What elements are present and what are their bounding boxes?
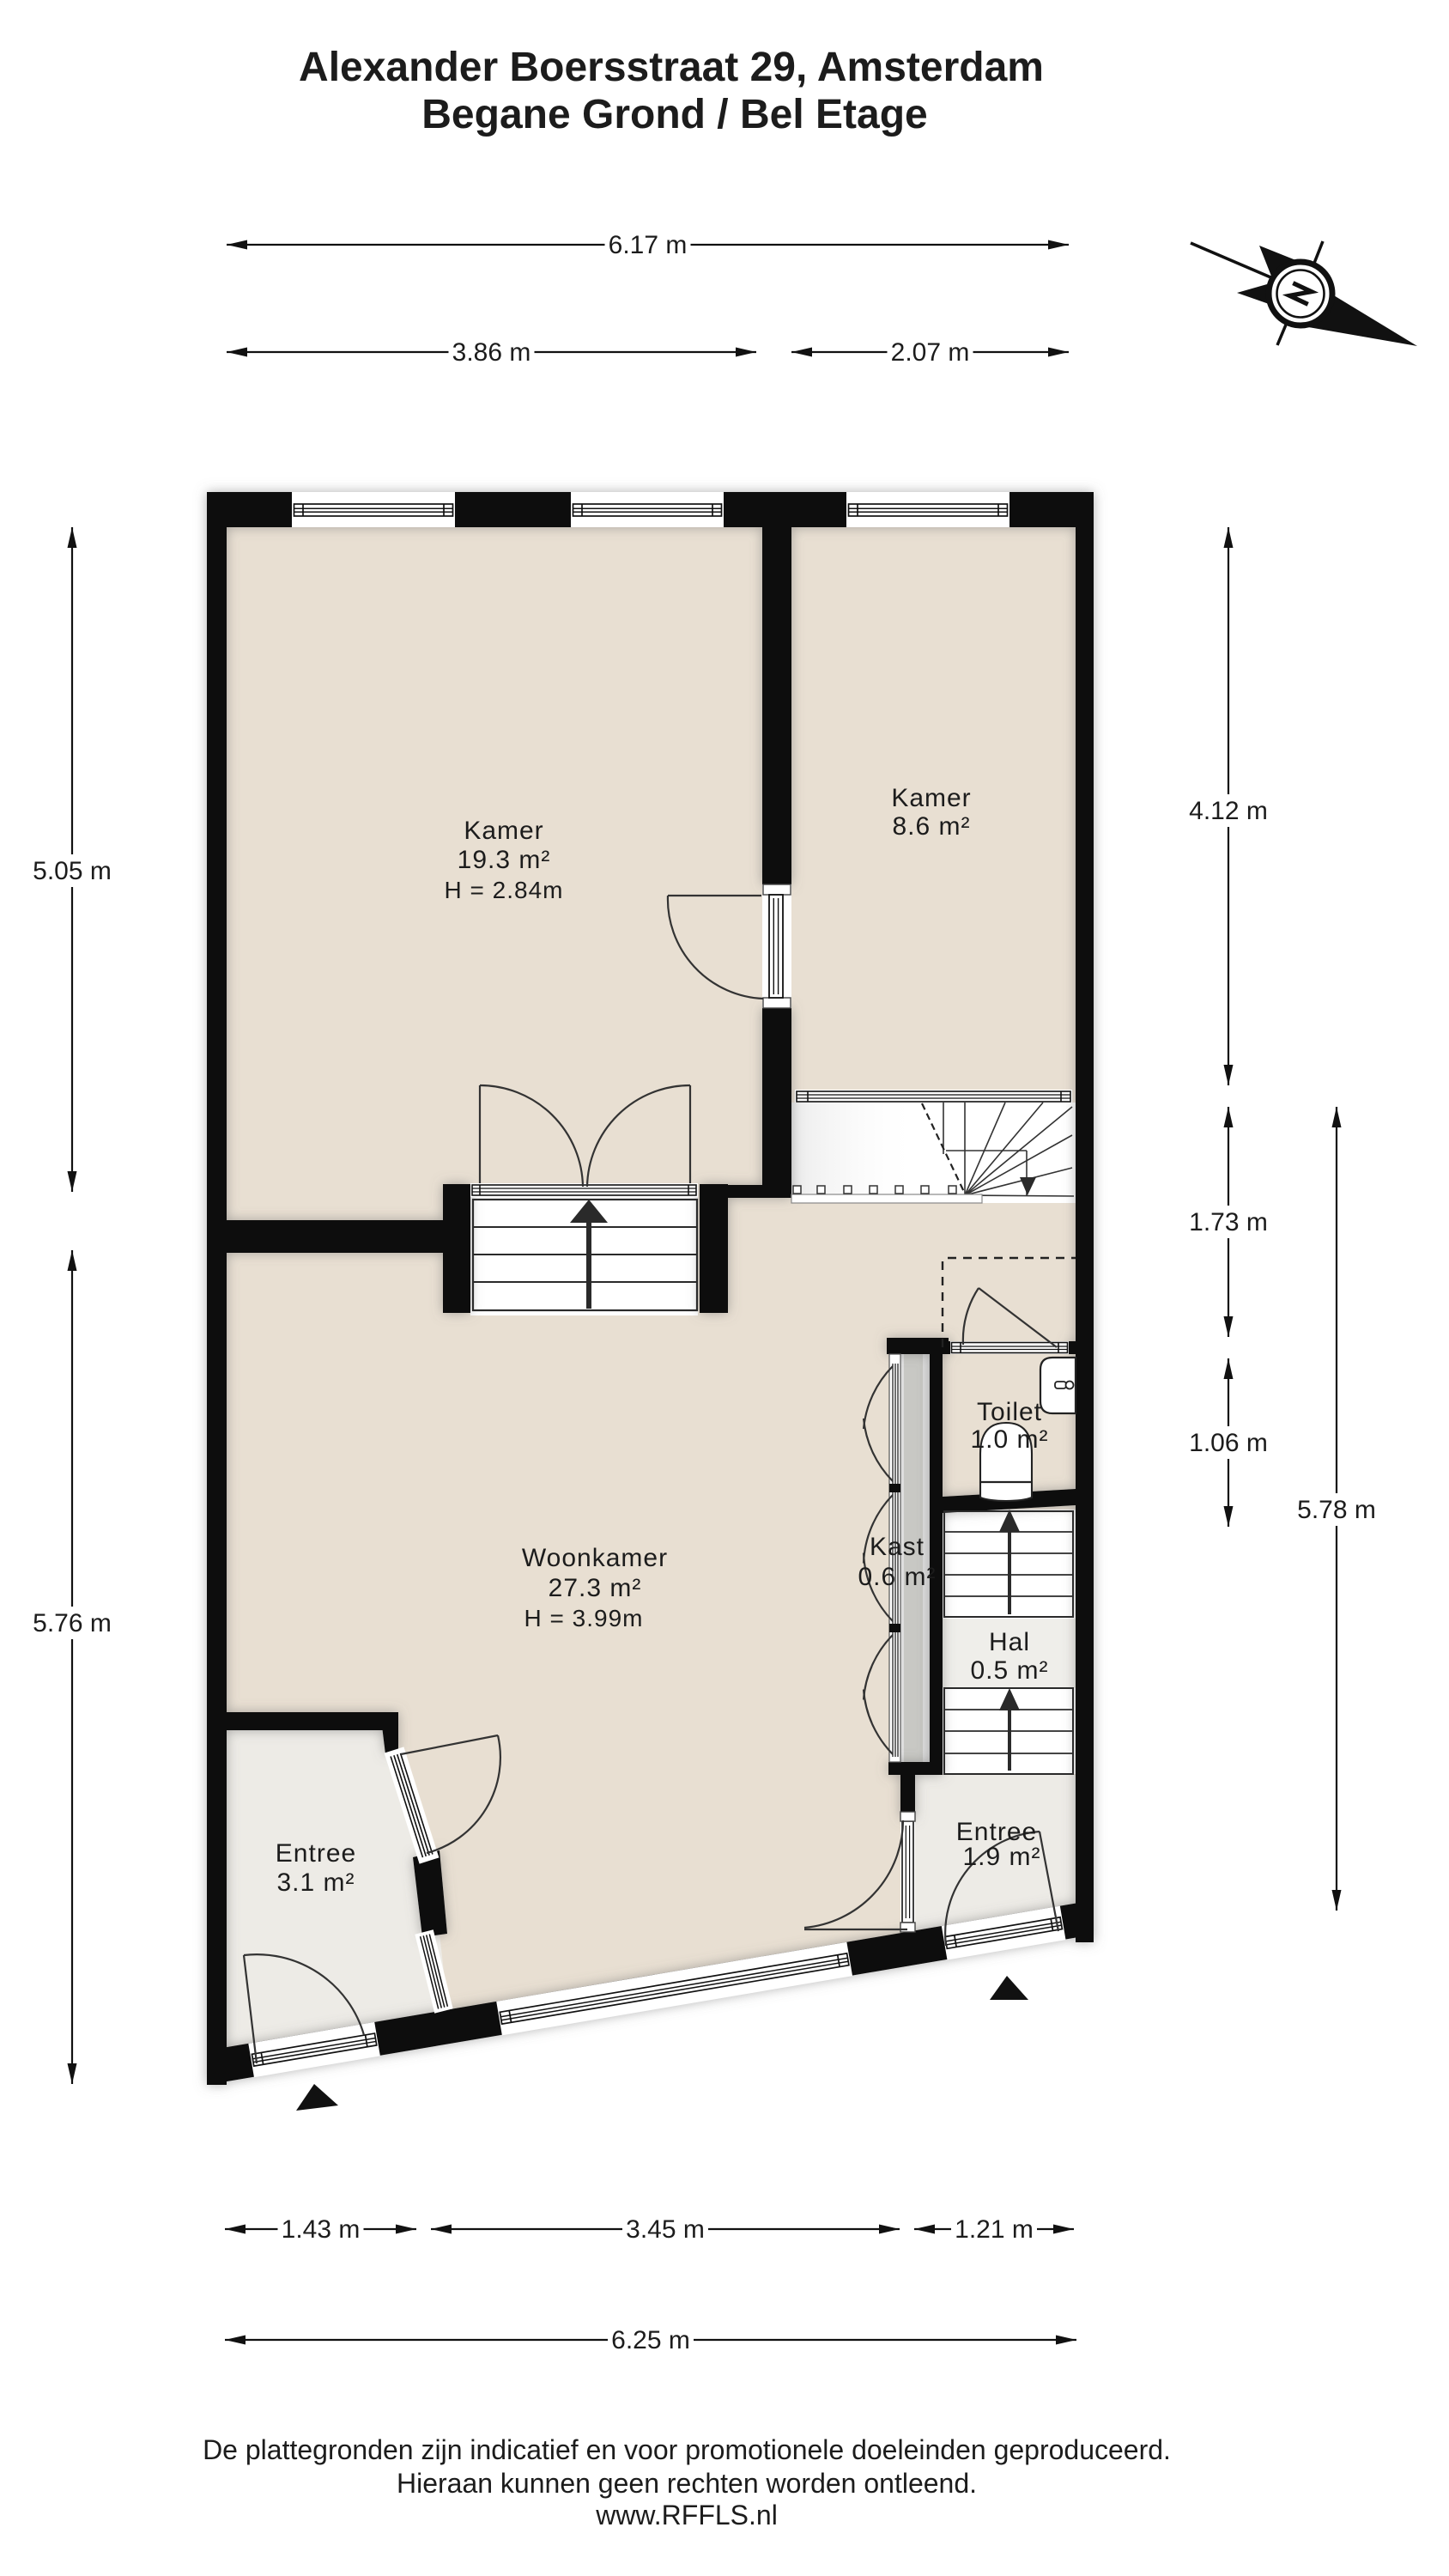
svg-text:H = 2.84m: H = 2.84m [445,877,564,903]
svg-text:1.21 m: 1.21 m [955,2215,1034,2244]
svg-text:Hieraan kunnen geen rechten wo: Hieraan kunnen geen rechten worden ontle… [397,2468,977,2499]
svg-text:Kamer: Kamer [464,817,543,845]
svg-text:6.25 m: 6.25 m [611,2326,690,2354]
svg-text:Kast: Kast [870,1533,925,1561]
svg-text:8.6 m²: 8.6 m² [892,812,970,841]
svg-text:19.3 m²: 19.3 m² [458,846,551,874]
svg-text:27.3 m²: 27.3 m² [549,1574,642,1602]
svg-text:Hal: Hal [989,1628,1030,1656]
svg-text:Toilet: Toilet [977,1398,1042,1426]
svg-text:www.RFFLS.nl: www.RFFLS.nl [595,2500,778,2530]
svg-text:3.45 m: 3.45 m [626,2215,705,2244]
svg-text:6.17 m: 6.17 m [609,231,688,259]
svg-text:H = 3.99m: H = 3.99m [524,1605,644,1631]
svg-text:2.07 m: 2.07 m [891,338,970,367]
svg-text:1.0 m²: 1.0 m² [970,1425,1048,1454]
svg-text:1.06 m: 1.06 m [1189,1429,1268,1457]
svg-text:3.1 m²: 3.1 m² [276,1868,355,1897]
svg-text:1.9 m²: 1.9 m² [962,1843,1040,1871]
svg-text:0.5 m²: 0.5 m² [970,1656,1048,1685]
svg-text:5.78 m: 5.78 m [1297,1496,1376,1524]
svg-text:De plattegronden zijn indicati: De plattegronden zijn indicatief en voor… [203,2434,1171,2465]
svg-text:Begane Grond / Bel Etage: Begane Grond / Bel Etage [421,92,927,137]
svg-text:Alexander Boersstraat 29, Amst: Alexander Boersstraat 29, Amsterdam [299,45,1044,90]
svg-text:5.76 m: 5.76 m [33,1609,112,1637]
svg-text:4.12 m: 4.12 m [1189,797,1268,825]
svg-text:1.73 m: 1.73 m [1189,1208,1268,1236]
svg-text:5.05 m: 5.05 m [33,857,112,885]
svg-text:Kamer: Kamer [891,784,971,812]
svg-text:Woonkamer: Woonkamer [522,1544,668,1572]
svg-text:Entree: Entree [276,1839,356,1868]
svg-text:0.6 m²: 0.6 m² [858,1563,936,1591]
svg-text:3.86 m: 3.86 m [452,338,531,367]
svg-text:1.43 m: 1.43 m [282,2215,361,2244]
